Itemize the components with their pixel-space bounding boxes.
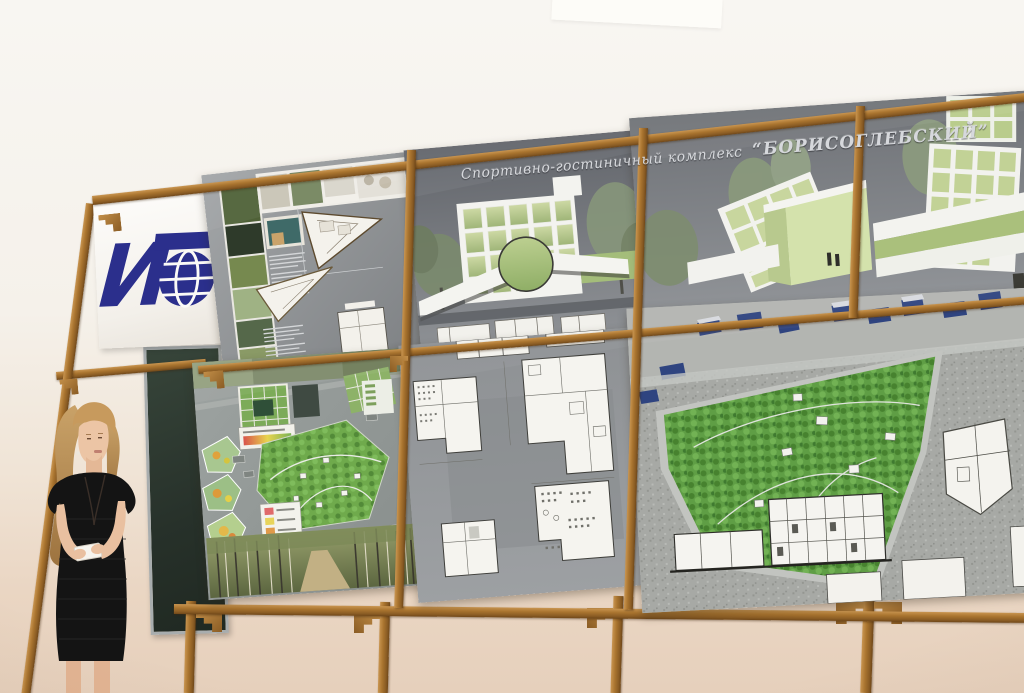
face xyxy=(78,420,108,464)
photo-scene: И xyxy=(0,0,1024,693)
presenter-figure xyxy=(15,393,165,693)
board-bottom-left-graphic xyxy=(192,348,424,600)
presenter-woman xyxy=(15,393,165,693)
board-bottom-right-graphic xyxy=(626,288,1024,614)
frame-leg-1 xyxy=(184,601,196,693)
dress xyxy=(48,472,136,661)
white-chart-card xyxy=(362,379,394,415)
board-bottom-right-aerial xyxy=(626,288,1024,614)
legs xyxy=(66,661,110,693)
board-bottom-left-siteplan xyxy=(192,348,424,600)
dark-panel xyxy=(292,384,320,418)
board-bottom-center-floorplans xyxy=(398,327,656,603)
ceiling-glare xyxy=(551,0,722,28)
floor-plan-c xyxy=(441,520,498,577)
board-bottom-center-graphic xyxy=(398,327,656,603)
